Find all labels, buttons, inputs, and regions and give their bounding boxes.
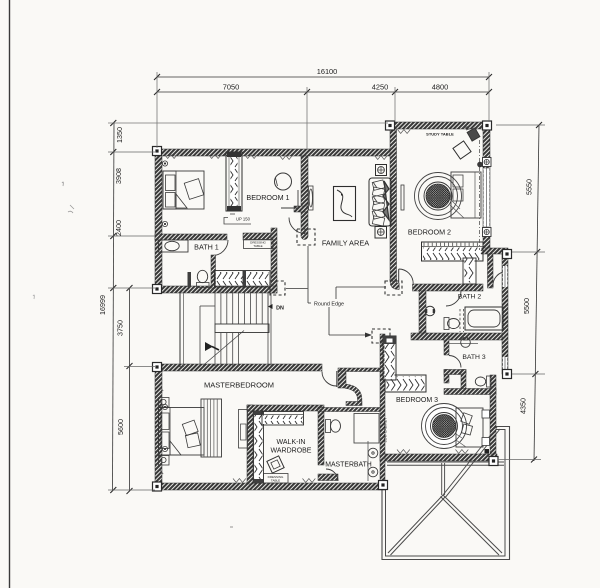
svg-text:5550: 5550 [525, 179, 534, 195]
svg-text:2400: 2400 [114, 220, 123, 236]
svg-text:4350: 4350 [519, 398, 528, 414]
svg-text:5500: 5500 [522, 298, 531, 314]
svg-text:1350: 1350 [115, 127, 124, 143]
svg-text:BATH 1: BATH 1 [194, 243, 219, 252]
svg-text:WARDROBE: WARDROBE [271, 448, 312, 455]
svg-text:4250: 4250 [372, 83, 388, 92]
svg-text:UP 150: UP 150 [236, 217, 251, 222]
svg-text:16100: 16100 [317, 67, 338, 76]
svg-text:BEDROOM 2: BEDROOM 2 [408, 228, 451, 237]
svg-text:3750: 3750 [116, 320, 125, 336]
svg-text:Round Edge: Round Edge [314, 302, 344, 308]
svg-text:BATH 2: BATH 2 [458, 294, 482, 301]
svg-text:TABLE: TABLE [271, 479, 280, 483]
svg-text:4800: 4800 [432, 83, 448, 92]
svg-text:BEDROOM 1: BEDROOM 1 [246, 193, 289, 202]
svg-text:MASTERBEDROOM: MASTERBEDROOM [204, 381, 274, 390]
svg-text:BATH 3: BATH 3 [462, 354, 486, 361]
svg-text:7050: 7050 [223, 83, 239, 92]
svg-text:STUDY TABLE: STUDY TABLE [426, 132, 454, 137]
svg-text:5600: 5600 [116, 419, 125, 435]
svg-text:FAMILY AREA: FAMILY AREA [322, 239, 369, 248]
svg-text:16999: 16999 [98, 295, 107, 315]
svg-text:MASTERBATH: MASTERBATH [325, 462, 372, 469]
svg-text:WALK-IN: WALK-IN [277, 439, 306, 446]
svg-text:DN: DN [276, 306, 284, 312]
svg-text:BEDROOM 3: BEDROOM 3 [396, 397, 438, 404]
svg-text:TABLE: TABLE [253, 244, 262, 248]
svg-text:LOW CABINET: LOW CABINET [384, 417, 388, 443]
svg-text:3908: 3908 [114, 168, 123, 184]
